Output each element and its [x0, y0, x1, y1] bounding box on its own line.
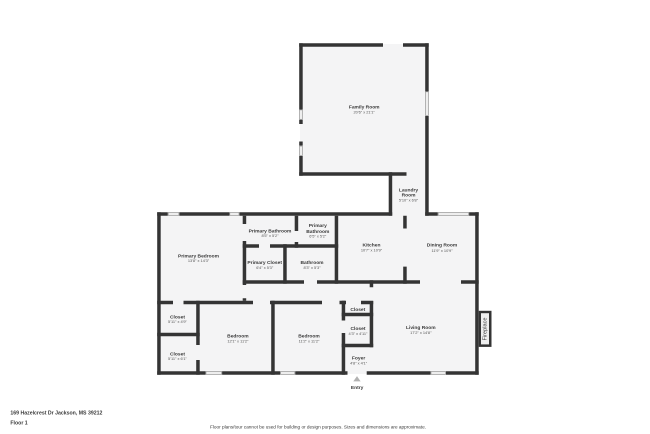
svg-text:Floor 1: Floor 1 — [10, 420, 27, 426]
svg-text:Primary: Primary — [309, 223, 327, 229]
svg-text:5'11" x 4'9": 5'11" x 4'9" — [168, 319, 188, 324]
svg-text:5'10" x 6'8": 5'10" x 6'8" — [399, 197, 419, 202]
svg-text:20'6" x 21'1": 20'6" x 21'1" — [354, 109, 376, 114]
svg-text:Entry: Entry — [351, 385, 364, 391]
svg-text:4'8" x 4'1": 4'8" x 4'1" — [350, 361, 368, 366]
svg-text:8'5" x 5'2": 8'5" x 5'2" — [261, 233, 279, 238]
svg-text:8'3" x 5'3": 8'3" x 5'3" — [303, 265, 321, 270]
svg-text:Closet: Closet — [350, 307, 365, 313]
svg-text:11'2" x 11'2": 11'2" x 11'2" — [299, 338, 320, 343]
svg-text:Fireplace: Fireplace — [483, 317, 489, 340]
svg-text:11'9" x 10'9": 11'9" x 10'9" — [431, 248, 453, 253]
svg-text:6'5" x 5'2": 6'5" x 5'2" — [309, 233, 327, 238]
svg-text:169 Hazelcrest Dr Jackson, MS: 169 Hazelcrest Dr Jackson, MS 39212 — [10, 411, 102, 417]
svg-text:4'3" x 4'11": 4'3" x 4'11" — [349, 331, 369, 336]
svg-text:12'1" x 11'2": 12'1" x 11'2" — [227, 338, 249, 343]
svg-text:Laundry: Laundry — [399, 187, 419, 193]
svg-text:17'2" x 14'8": 17'2" x 14'8" — [410, 330, 432, 335]
svg-text:13'8" x 14'3": 13'8" x 14'3" — [188, 258, 210, 263]
svg-text:5'11" x 6'1": 5'11" x 6'1" — [168, 356, 188, 361]
svg-text:Floor plans/tour cannot be use: Floor plans/tour cannot be used for buil… — [210, 425, 426, 430]
svg-text:10'7" x 10'9": 10'7" x 10'9" — [361, 248, 383, 253]
svg-text:6'4" x 5'3": 6'4" x 5'3" — [256, 265, 274, 270]
